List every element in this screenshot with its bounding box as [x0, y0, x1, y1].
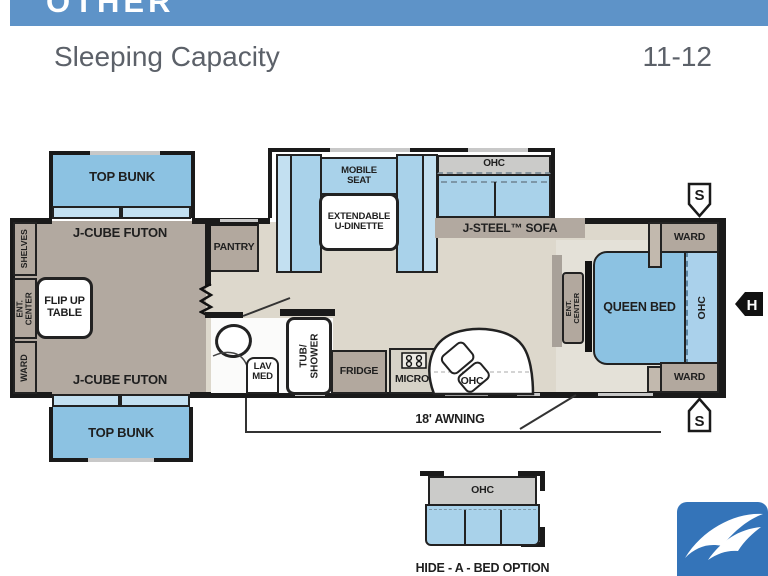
sofa-ohc-label: OHC — [483, 159, 505, 170]
inset-ohc-label: OHC — [471, 485, 494, 496]
bunk-front-window — [90, 151, 160, 155]
pantry: PANTRY — [209, 222, 259, 272]
dinette-seat-left — [276, 154, 322, 273]
lav-med-cabinet: LAV MED — [246, 357, 279, 394]
sofa-base: J-STEEL™ SOFA — [435, 218, 585, 238]
inset-ohc: OHC — [428, 476, 537, 506]
bunk-front-label: TOP BUNK — [49, 170, 195, 184]
pantry-label: PANTRY — [214, 242, 255, 253]
ward-bottom-label: WARD — [674, 372, 705, 383]
awning-leader — [517, 391, 579, 433]
awning-label: 18' AWNING — [395, 413, 505, 427]
wing-icon — [677, 502, 768, 576]
bunk-rear-mattress-2 — [120, 394, 190, 407]
spec-label: Sleeping Capacity — [54, 41, 280, 73]
bunk-rear-label: TOP BUNK — [49, 426, 193, 440]
seat-back-right — [422, 156, 436, 271]
queen-bed-label: QUEEN BED — [603, 301, 676, 315]
inset-sofa-divider-2 — [500, 510, 502, 544]
mobile-seat: MOBILE SEAT — [320, 157, 398, 195]
kitchen-ohc-label: OHC — [450, 376, 494, 387]
inset-corner-tr-v — [540, 471, 545, 491]
inset-caption: HIDE - A - BED OPTION — [405, 562, 560, 576]
futon-front-label: J-CUBE FUTON — [40, 226, 200, 240]
ward-top-label: WARD — [674, 232, 705, 243]
window-bottom-3 — [598, 393, 653, 396]
dinette-window-1 — [330, 148, 410, 152]
dinette-seat-right — [396, 154, 438, 273]
tv-bar — [585, 261, 592, 352]
category-title: OTHER — [46, 0, 175, 20]
wardrobe-bottom: WARD — [660, 362, 719, 393]
speaker-bottom-label: S — [694, 413, 704, 430]
hitch-marker: H — [734, 289, 765, 319]
ent-center-bedroom-label: ENT. CENTER — [565, 293, 582, 324]
speaker-marker-top: S — [687, 182, 713, 219]
awning-line — [245, 431, 661, 433]
lav-med-label: LAV MED — [248, 362, 277, 383]
queen-bed: QUEEN BED — [593, 251, 686, 365]
shelves-cabinet: SHELVES — [13, 222, 37, 276]
mobile-seat-label: MOBILE SEAT — [341, 166, 377, 187]
seat-back-left — [278, 156, 292, 271]
sofa-label: J-STEEL™ SOFA — [463, 222, 558, 235]
flip-table-label: FLIP UP TABLE — [44, 296, 85, 320]
bunk-front-mattress-2 — [121, 206, 191, 219]
fridge: FRIDGE — [331, 350, 387, 394]
bunk-rear-mattress-1 — [52, 394, 120, 407]
inset-sofa-divider-1 — [464, 510, 466, 544]
floorplan-page: OTHER Sleeping Capacity 11-12 TOP BUNK T… — [0, 0, 768, 576]
bunk-front-mattress-1 — [52, 206, 121, 219]
bunk-rear-window — [88, 458, 154, 462]
tub-shower: TUB/ SHOWER — [286, 317, 332, 395]
ward-left-label: WARD — [20, 354, 30, 382]
sofa-ohc: OHC — [437, 155, 551, 174]
lav-counter-edge — [211, 345, 251, 371]
sofa-divider — [494, 182, 496, 216]
jsteel-sofa-seat — [437, 174, 551, 218]
wardrobe-left: WARD — [13, 341, 37, 394]
speaker-top-label: S — [694, 187, 704, 204]
tub-wall-top — [280, 309, 335, 316]
awning-tick — [245, 398, 247, 433]
shelves-label: SHELVES — [20, 229, 29, 268]
dinette-table-label: EXTENDABLE U-DINETTE — [328, 212, 390, 233]
dinette-table: EXTENDABLE U-DINETTE — [319, 193, 399, 251]
brand-logo — [677, 502, 768, 576]
wardrobe-top: WARD — [660, 222, 719, 253]
speaker-marker-bottom: S — [687, 397, 713, 434]
hitch-label: H — [747, 297, 758, 314]
bed-head-ohc: OHC — [686, 251, 719, 365]
bed-ohc-label: OHC — [697, 296, 709, 319]
dinette-window-2 — [468, 148, 528, 152]
ent-center-bedroom: ENT. CENTER — [562, 272, 584, 344]
bath-door-swing — [240, 294, 294, 320]
ent-center-cabinet-left: ENT. CENTER — [13, 278, 37, 339]
partition-bunkroom — [205, 222, 211, 286]
hide-a-bed-sofa — [425, 504, 540, 546]
inset-sofa-cushion-line — [429, 509, 536, 510]
fridge-label: FRIDGE — [340, 366, 378, 377]
futon-rear-label: J-CUBE FUTON — [40, 373, 200, 387]
wall-right — [719, 218, 726, 398]
flip-up-table: FLIP UP TABLE — [36, 277, 93, 339]
spec-value: 11-12 — [598, 41, 712, 73]
ent-center-left-label: ENT. CENTER — [16, 292, 34, 325]
tub-shower-label: TUB/ SHOWER — [298, 334, 320, 379]
bedroom-divider — [552, 255, 562, 347]
